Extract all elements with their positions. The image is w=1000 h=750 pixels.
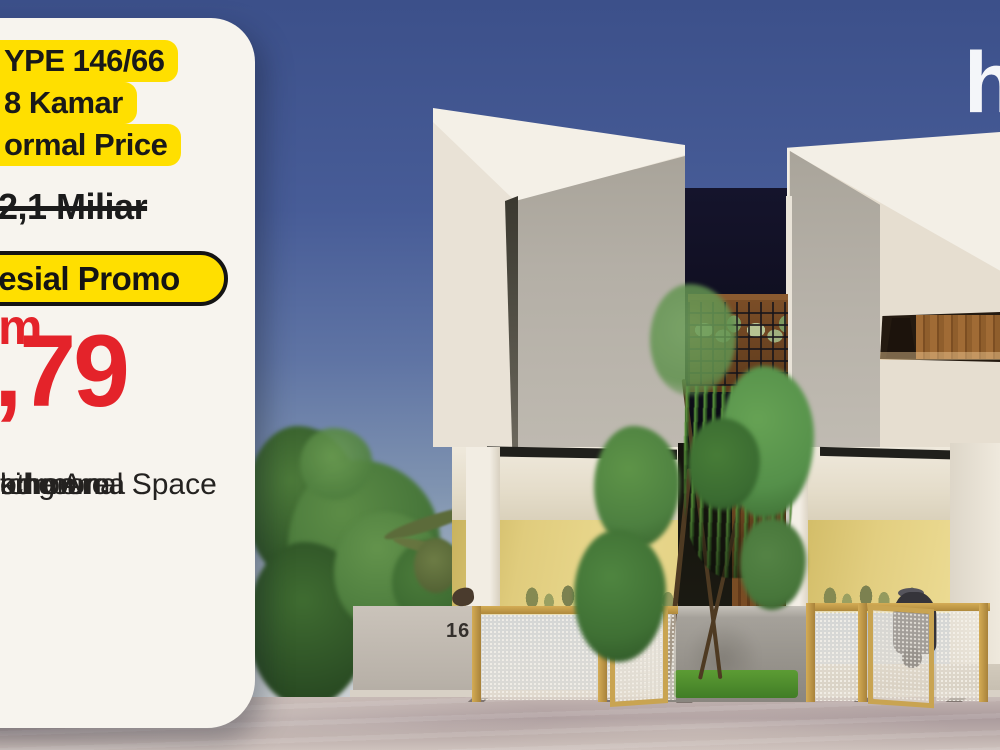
brand-logo-letter: h [964, 40, 1000, 126]
house-left-concrete-panel [517, 150, 685, 447]
type-badge-line: YPE 146/66 [0, 40, 178, 82]
window-light-glow [880, 352, 1000, 360]
promo-price-unit: m [0, 272, 42, 382]
gate-right-post [858, 603, 867, 702]
gate-right-post [979, 603, 988, 702]
grass-patch [674, 670, 798, 698]
old-price-strikethrough: 2,1 Miliar [0, 186, 238, 228]
gate-right-mesh-panel [936, 611, 979, 701]
gate-right-open-door [868, 605, 934, 709]
promo-banner: 16 YPE 146/66 8 Kamar ormal Price 2,1 M [0, 0, 1000, 750]
gate-right-post [806, 603, 815, 702]
type-badge: YPE 146/66 8 Kamar ormal Price [0, 40, 255, 166]
gate-left-post [472, 606, 481, 702]
feature-item: king Area [0, 462, 125, 508]
type-badge-line: ormal Price [0, 124, 181, 166]
type-badge-line: 8 Kamar [0, 82, 137, 124]
promo-price: ,79m [0, 316, 254, 426]
gate-right-mesh-panel [815, 611, 858, 701]
